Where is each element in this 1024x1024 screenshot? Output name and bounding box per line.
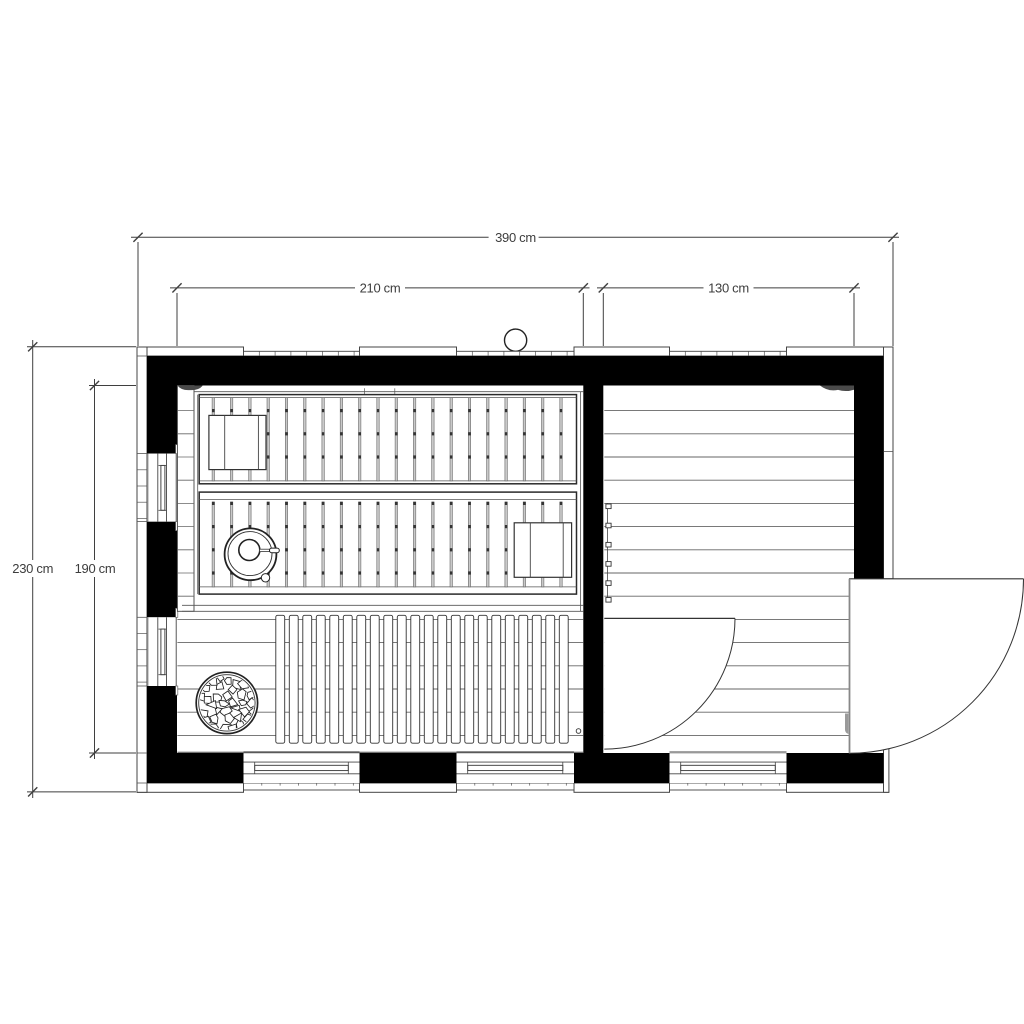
svg-text:190 cm: 190 cm	[75, 561, 116, 576]
svg-text:130 cm: 130 cm	[708, 281, 749, 296]
svg-text:210 cm: 210 cm	[360, 281, 401, 296]
svg-text:230 cm: 230 cm	[12, 561, 53, 576]
svg-text:390 cm: 390 cm	[495, 230, 536, 245]
